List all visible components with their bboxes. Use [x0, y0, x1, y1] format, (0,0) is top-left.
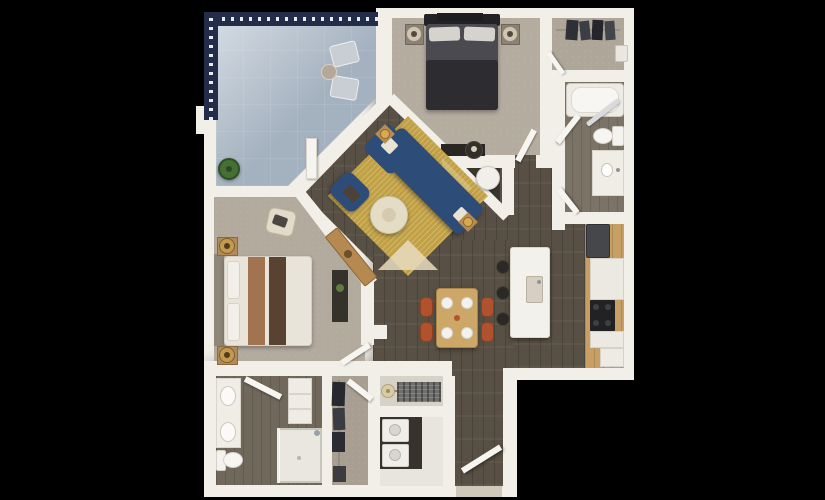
linen-shelf-line-1 — [288, 393, 312, 395]
table-centerpiece — [454, 315, 460, 321]
bed2-runner-light — [248, 257, 265, 345]
bar-stool-3 — [496, 312, 510, 326]
coat-closet-hat-dot — [386, 389, 390, 393]
shower-drain — [297, 456, 301, 460]
shower-glass — [277, 428, 280, 483]
coffee-table-top — [382, 208, 396, 222]
lounge-chair-2 — [329, 75, 359, 101]
coat-closet-clothes — [397, 382, 441, 402]
wall-bedroom2-jamb — [363, 325, 387, 339]
potted-plant-core — [226, 166, 232, 172]
floor-plan — [0, 0, 825, 500]
bath2-sink-top — [220, 386, 236, 406]
wic1-garment-2 — [579, 21, 591, 41]
place-setting-4 — [461, 327, 473, 339]
balcony-railing-left — [204, 12, 218, 120]
kitchen-counter-upper — [590, 258, 624, 300]
burner-1 — [593, 304, 599, 310]
dresser-plant — [336, 284, 344, 292]
shower-head — [314, 430, 320, 436]
bed2-pillow-bottom — [227, 303, 240, 341]
wall-bedroom1-east — [540, 8, 552, 168]
bathtub-basin — [571, 87, 619, 113]
wall-bath2-wic2 — [322, 376, 332, 497]
bed2-headboard — [214, 254, 224, 346]
toilet1-tank — [612, 126, 624, 146]
wall-kitchen-south — [505, 368, 634, 380]
kitchen-counter-lower — [590, 331, 624, 348]
linen-shelf — [288, 378, 312, 424]
console-decor — [344, 250, 352, 258]
wall-bottom-block-top — [204, 361, 452, 376]
washer-door — [389, 424, 401, 436]
island-faucet — [537, 280, 541, 284]
refrigerator — [586, 224, 610, 258]
bed2-pillow-top — [227, 261, 240, 299]
water-heater — [476, 166, 500, 190]
balcony-railing-top — [204, 12, 378, 26]
burner-3 — [593, 320, 599, 326]
linen-shelf-line-2 — [288, 408, 312, 410]
wall-corridor-east — [503, 368, 517, 497]
patio-table — [321, 64, 337, 80]
bed1-pillow-left — [429, 26, 460, 41]
wall-bath1-west — [552, 82, 565, 230]
bath1-faucet — [616, 168, 620, 172]
place-setting-3 — [441, 327, 453, 339]
tv-shelf — [437, 13, 483, 21]
bedroom2-dresser — [332, 270, 348, 322]
bedroom1-candle — [471, 146, 477, 152]
entry-threshold — [456, 486, 502, 497]
wall-balcony-bedroom1 — [376, 8, 392, 104]
bed1-blanket — [426, 60, 498, 110]
wic2-garment-1 — [332, 382, 346, 406]
place-setting-1 — [441, 297, 453, 309]
dining-chair-2 — [420, 322, 433, 342]
lamp-bed1-left-dot — [411, 31, 417, 37]
bed2-runner-dark — [269, 257, 286, 345]
lamp-bed2-top-dot — [224, 243, 230, 249]
toilet1-bowl — [593, 128, 613, 144]
bar-stool-1 — [496, 260, 510, 274]
burner-2 — [605, 304, 611, 310]
lamp-sofa-bottom — [463, 217, 473, 227]
wic1-garment-3 — [591, 20, 603, 41]
lamp-bed2-bottom-dot — [224, 352, 230, 358]
wic2-shoe-rack — [333, 466, 346, 482]
wic1-garment-1 — [565, 20, 578, 41]
wall-coat-corridor — [443, 376, 455, 497]
dryer-door — [389, 449, 401, 461]
wic2-garment-3 — [332, 432, 345, 452]
dining-chair-4 — [481, 322, 494, 342]
wic1-garment-4 — [604, 21, 615, 41]
lamp-sofa-top — [380, 129, 390, 139]
dining-chair-3 — [481, 297, 494, 317]
balcony-door-leaf — [306, 138, 317, 179]
place-setting-2 — [461, 297, 473, 309]
wall-bath1-south — [552, 212, 634, 224]
bath1-sink — [601, 163, 613, 177]
kitchen-base-cabinet — [600, 348, 624, 367]
dining-chair-1 — [420, 297, 433, 317]
bed1-pillow-right — [464, 26, 495, 41]
toilet2-bowl — [223, 452, 243, 468]
wic1-hamper — [615, 45, 628, 62]
bar-stool-2 — [496, 286, 510, 300]
wic2-garment-2 — [333, 408, 346, 430]
lamp-bed1-right-dot — [507, 31, 513, 37]
bath2-sink-bottom — [220, 422, 236, 442]
burner-4 — [605, 320, 611, 326]
wall-coat-laundry — [373, 406, 443, 417]
